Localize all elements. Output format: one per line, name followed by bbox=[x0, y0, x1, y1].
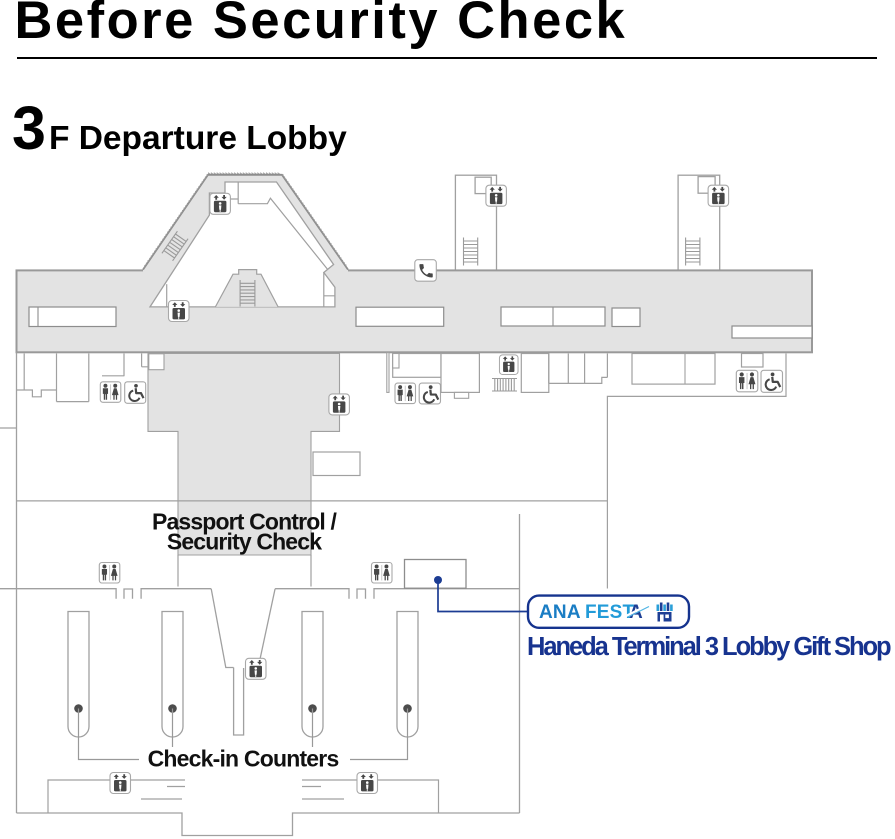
svg-text:FEST: FEST bbox=[585, 602, 635, 623]
svg-text:Check-in Counters: Check-in Counters bbox=[148, 746, 339, 772]
svg-text:Haneda Terminal 3 Lobby Gift S: Haneda Terminal 3 Lobby Gift Shop bbox=[527, 633, 891, 661]
svg-text:ANA: ANA bbox=[539, 602, 581, 623]
svg-text:Security Check: Security Check bbox=[167, 529, 322, 555]
